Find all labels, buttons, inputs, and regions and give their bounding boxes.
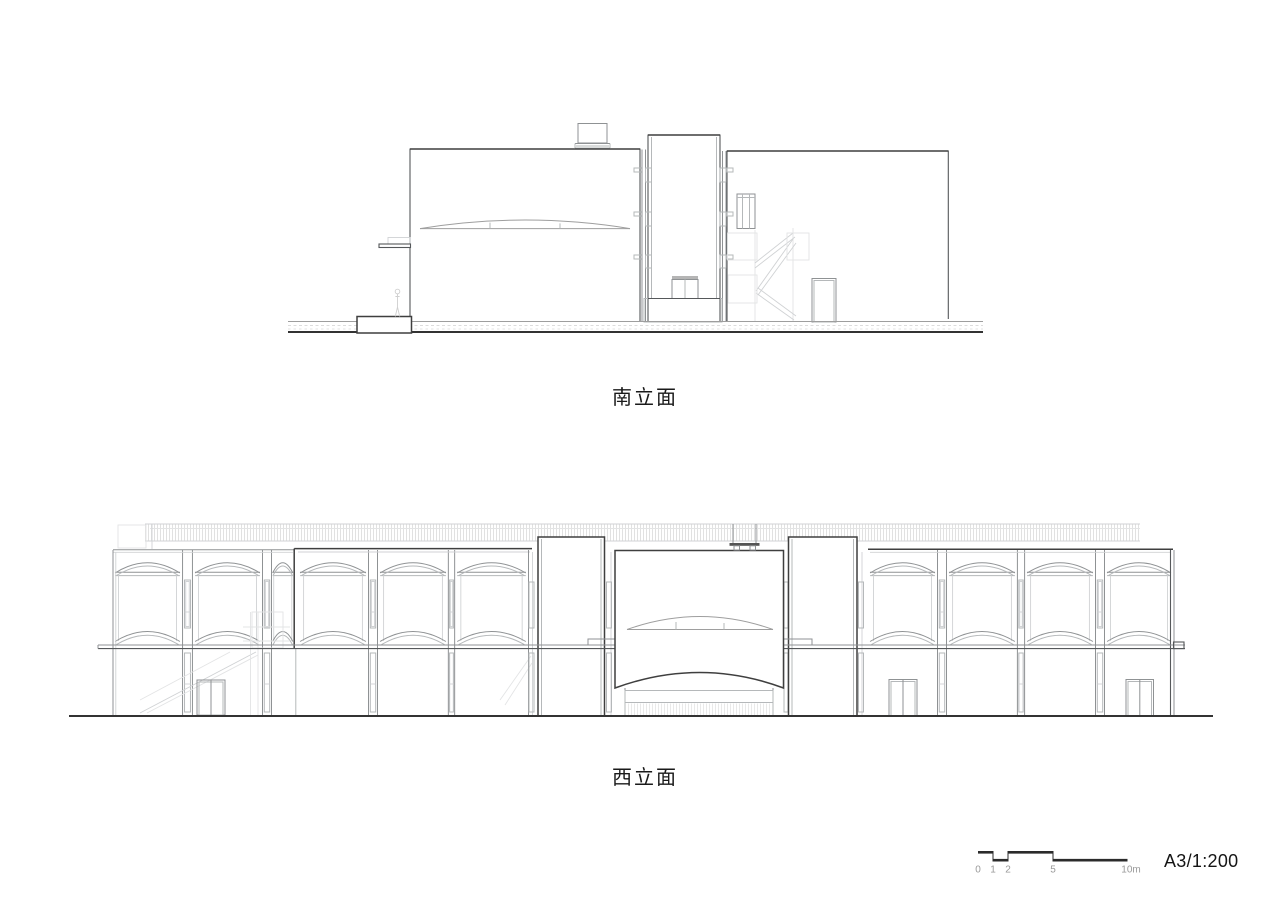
scale-tick-0: 0 [975, 865, 981, 876]
canopy-slab [379, 244, 411, 248]
west-door-left [197, 680, 225, 715]
south-center-tower [642, 135, 726, 322]
canopy-step [388, 238, 410, 245]
entry-platform [357, 317, 412, 334]
scale-bar: 0 1 2 5 10m [975, 851, 1141, 876]
scale-tick-10m: 10m [1121, 865, 1140, 876]
west-elevation-label: 西立面 [612, 766, 678, 789]
west-door-mid [889, 680, 917, 716]
south-right-block [727, 151, 948, 322]
scale-tick-2: 2 [1005, 865, 1011, 876]
west-right-tower [789, 537, 858, 716]
south-left-block [379, 149, 640, 322]
west-left-tower [538, 537, 605, 716]
drawing-sheet: 南立面 西立面 0 1 2 5 10m A3/1:200 [0, 0, 1280, 904]
sheet-format-scale: A3/1:200 [1164, 851, 1238, 871]
elevations-canvas: 南立面 西立面 0 1 2 5 10m A3/1:200 [0, 0, 1280, 904]
south-elevation-drawing [288, 124, 983, 334]
roof-band [118, 524, 1140, 549]
west-elevation-drawing [69, 524, 1213, 716]
central-hall [615, 524, 784, 716]
roof-vent [575, 124, 610, 149]
west-door-right [1126, 680, 1154, 716]
scale-tick-1: 1 [990, 865, 996, 876]
scale-tick-5: 5 [1050, 865, 1056, 876]
south-elevation-label: 南立面 [612, 386, 678, 409]
person-figure [395, 289, 400, 316]
